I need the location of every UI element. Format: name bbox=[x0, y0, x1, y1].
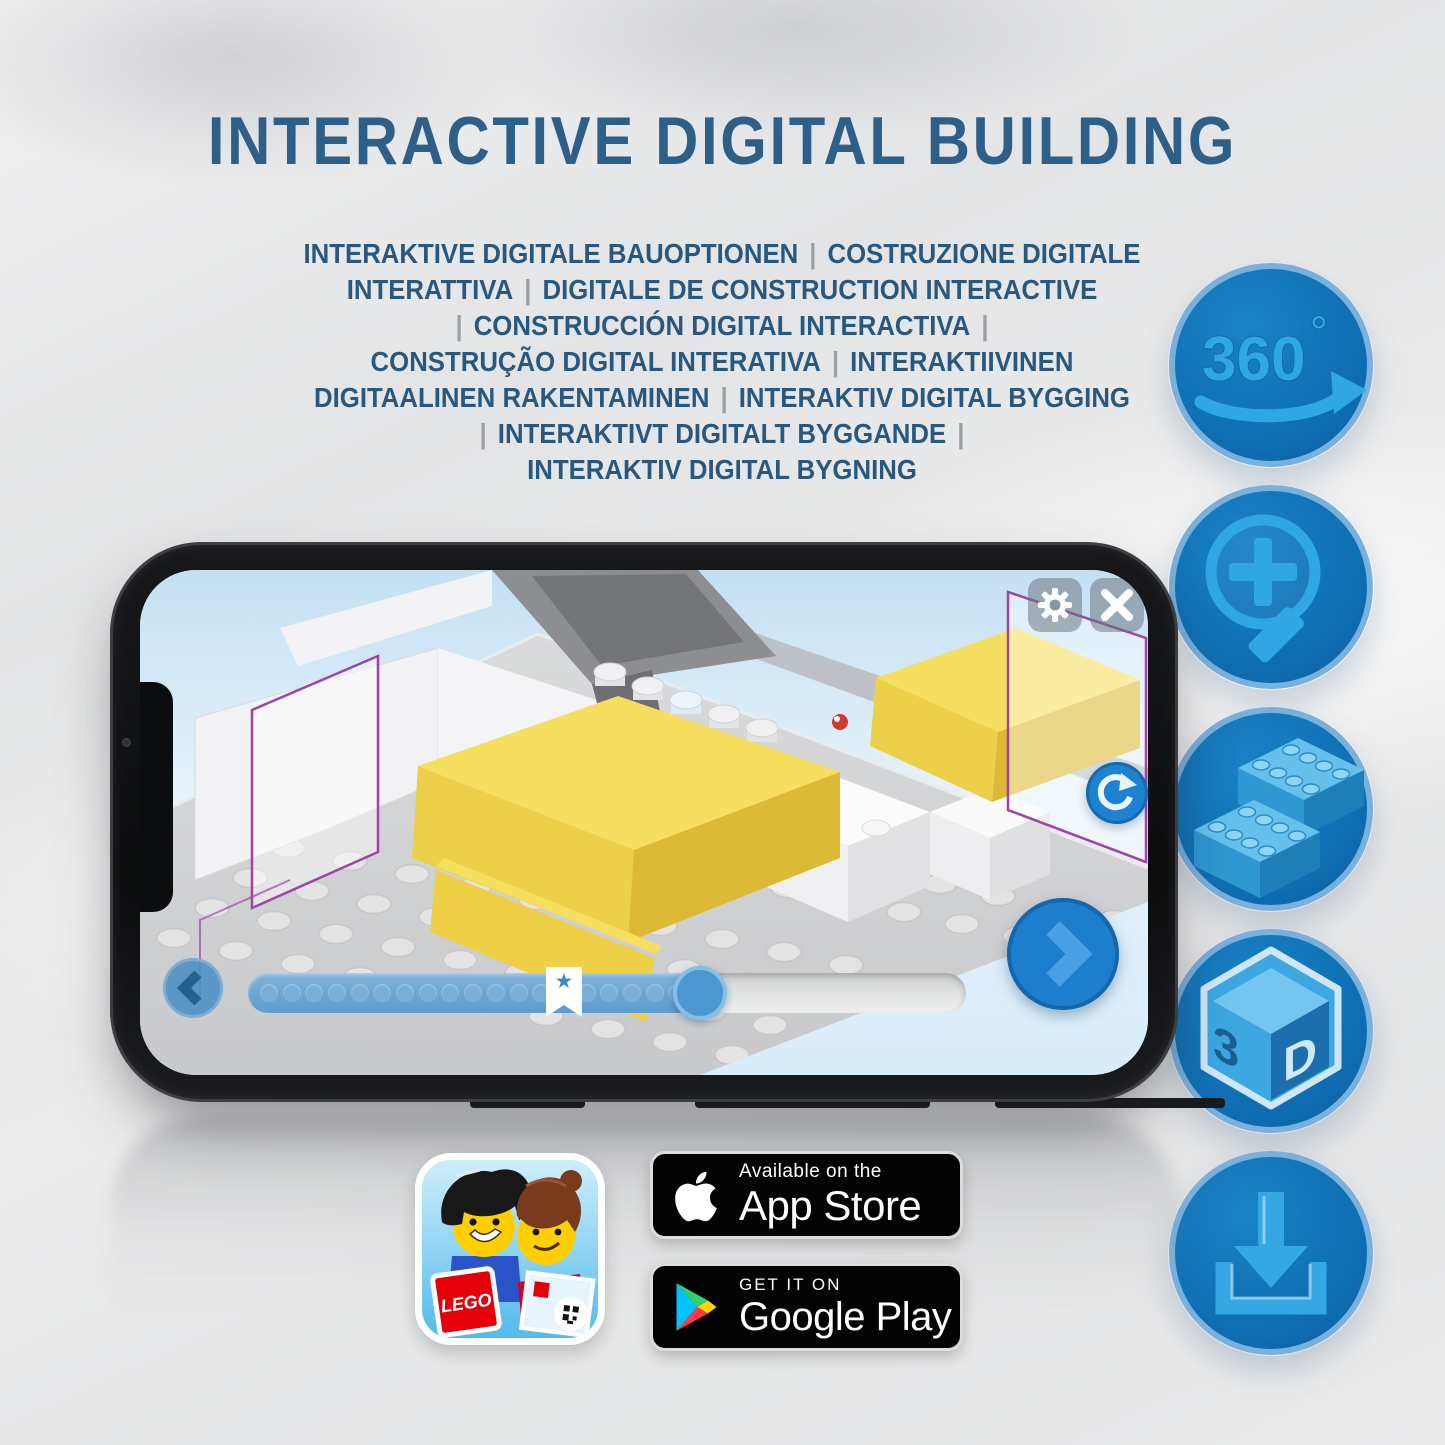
brick-icon bbox=[1168, 706, 1374, 912]
slider-dot bbox=[510, 984, 528, 1002]
phone-mockup: ★ bbox=[110, 542, 1178, 1102]
subtitle-text: INTERAKTIVT DIGITALT BYGGANDE bbox=[498, 418, 946, 449]
app-store-badge[interactable]: Available on the App Store bbox=[650, 1151, 963, 1239]
red-piece bbox=[832, 714, 848, 730]
phone-reflection bbox=[110, 1116, 1178, 1366]
google-play-icon bbox=[653, 1281, 739, 1333]
apple-icon bbox=[653, 1165, 739, 1225]
subtitle-line: CONSTRUÇÃO DIGITAL INTERATIVA|INTERAKTII… bbox=[152, 344, 1293, 380]
instruction-booklet bbox=[521, 1272, 593, 1336]
close-button[interactable] bbox=[1090, 578, 1144, 632]
subtitle-text: INTERAKTIIVINEN bbox=[850, 346, 1073, 377]
subtitle-line: INTERATTIVA|DIGITALE DE CONSTRUCTION INT… bbox=[152, 272, 1293, 308]
google-play-badge[interactable]: GET IT ON Google Play bbox=[650, 1263, 963, 1351]
lego-app-artwork: LEGO bbox=[422, 1160, 598, 1338]
feature-brick bbox=[1168, 706, 1374, 912]
google-play-name: Google Play bbox=[739, 1296, 951, 1338]
separator: | bbox=[480, 418, 487, 449]
separator: | bbox=[981, 310, 988, 341]
feature-zoom bbox=[1168, 484, 1374, 690]
chevron-right-icon bbox=[1007, 898, 1119, 1010]
close-icon bbox=[1100, 588, 1134, 622]
subtitle-text: INTERAKTIV DIGITAL BYGGING bbox=[739, 382, 1130, 413]
apple-logo bbox=[670, 1165, 722, 1225]
phone-notch bbox=[140, 682, 173, 912]
separator: | bbox=[832, 346, 839, 377]
slider-dot bbox=[623, 984, 641, 1002]
subtitle-line: |INTERAKTIVT DIGITALT BYGGANDE| bbox=[152, 416, 1293, 452]
zoom-in-icon bbox=[1168, 484, 1374, 690]
front-camera bbox=[122, 738, 131, 747]
feature-360-rotation: 360 ° bbox=[1168, 262, 1374, 468]
slider-handle[interactable] bbox=[673, 966, 727, 1020]
promo-page: INTERACTIVE DIGITAL BUILDING INTERAKTIVE… bbox=[0, 0, 1445, 1445]
subtitle-text: INTERAKTIV DIGITAL BYGNING bbox=[527, 454, 917, 485]
slider-dot bbox=[646, 984, 664, 1002]
subtitle-text: CONSTRUÇÃO DIGITAL INTERATIVA bbox=[371, 346, 821, 377]
subtitle-text: INTERAKTIVE DIGITALE BAUOPTIONEN bbox=[304, 238, 799, 269]
chevron-left-icon bbox=[163, 958, 223, 1018]
download-icon bbox=[1168, 1150, 1374, 1356]
lego-logo: LEGO bbox=[432, 1268, 500, 1336]
build-progress-slider[interactable]: ★ bbox=[248, 973, 966, 1013]
separator: | bbox=[455, 310, 462, 341]
subtitle-line: INTERAKTIVE DIGITALE BAUOPTIONEN|COSTRUZ… bbox=[152, 236, 1293, 272]
subtitle-text: INTERATTIVA bbox=[347, 274, 513, 305]
slider-dot bbox=[419, 984, 437, 1002]
subtitle-line: DIGITAALINEN RAKENTAMINEN|INTERAKTIV DIG… bbox=[152, 380, 1293, 416]
subtitle: INTERAKTIVE DIGITALE BAUOPTIONEN|COSTRUZ… bbox=[152, 236, 1293, 488]
slider-dot bbox=[351, 984, 369, 1002]
google-play-tagline: GET IT ON bbox=[739, 1276, 951, 1294]
degree-symbol: ° bbox=[1310, 307, 1328, 356]
slider-dot bbox=[396, 984, 414, 1002]
play-triangle bbox=[672, 1281, 720, 1333]
separator: | bbox=[957, 418, 964, 449]
subtitle-line: INTERAKTIV DIGITAL BYGNING bbox=[152, 452, 1293, 488]
separator: | bbox=[721, 382, 728, 413]
gear-icon bbox=[1036, 586, 1074, 624]
360-label: 360 bbox=[1202, 325, 1305, 394]
feature-download bbox=[1168, 1150, 1374, 1356]
slider-dot bbox=[260, 984, 278, 1002]
slider-dot bbox=[487, 984, 505, 1002]
next-step-button[interactable] bbox=[1007, 898, 1119, 1010]
lego-app-icon[interactable]: LEGO bbox=[415, 1153, 605, 1345]
subtitle-text: COSTRUZIONE DIGITALE bbox=[828, 238, 1141, 269]
page-title: INTERACTIVE DIGITAL BUILDING bbox=[87, 102, 1359, 180]
subtitle-text: DIGITALE DE CONSTRUCTION INTERACTIVE bbox=[542, 274, 1097, 305]
slider-dot bbox=[283, 984, 301, 1002]
subtitle-text: DIGITAALINEN RAKENTAMINEN bbox=[314, 382, 709, 413]
separator: | bbox=[524, 274, 531, 305]
subtitle-line: |CONSTRUCCIÓN DIGITAL INTERACTIVA| bbox=[152, 308, 1293, 344]
rotate-arrow-icon bbox=[1095, 771, 1139, 815]
slider-dot bbox=[328, 984, 346, 1002]
previous-step-button[interactable] bbox=[163, 958, 223, 1018]
settings-button[interactable] bbox=[1028, 578, 1082, 632]
app-store-name: App Store bbox=[739, 1184, 921, 1228]
360-rotation-icon: 360 ° bbox=[1168, 262, 1374, 468]
phone-screen: ★ bbox=[140, 570, 1148, 1075]
app-store-tagline: Available on the bbox=[739, 1162, 921, 1182]
subtitle-text: CONSTRUCCIÓN DIGITAL INTERACTIVA bbox=[474, 310, 971, 341]
rotate-view-button[interactable] bbox=[1086, 762, 1148, 824]
separator: | bbox=[809, 238, 816, 269]
